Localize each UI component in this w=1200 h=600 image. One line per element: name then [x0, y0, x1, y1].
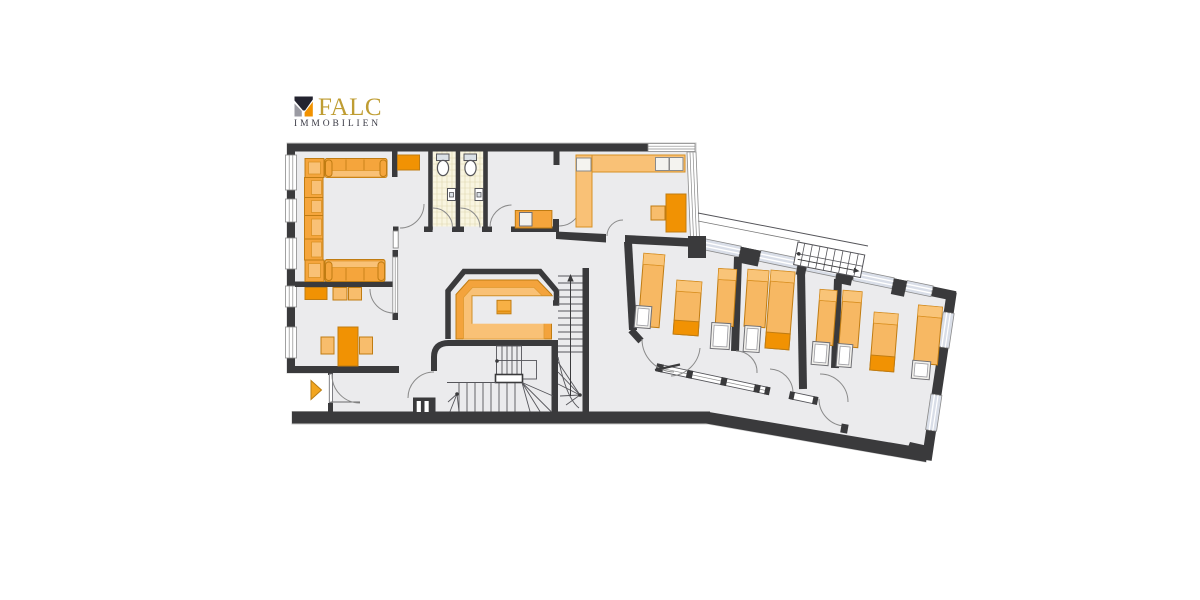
svg-text:FALC: FALC	[318, 94, 382, 121]
svg-text:IMMOBILIEN: IMMOBILIEN	[294, 119, 381, 129]
